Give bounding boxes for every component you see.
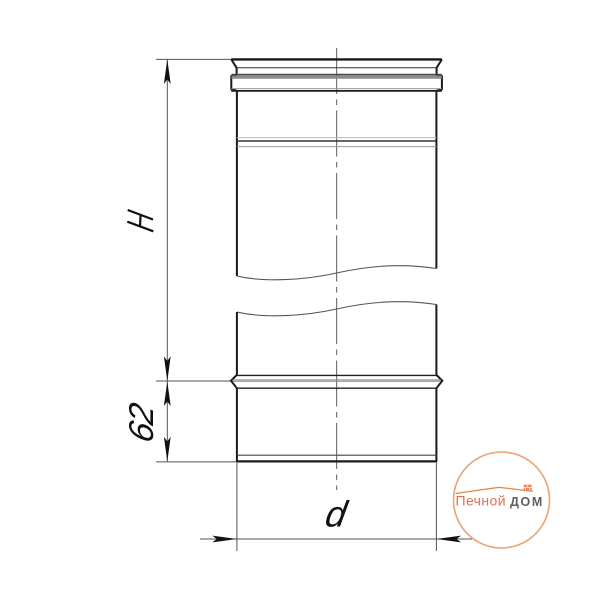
svg-text:ДОМ: ДОМ xyxy=(510,495,544,509)
svg-text:Печной: Печной xyxy=(456,493,506,509)
